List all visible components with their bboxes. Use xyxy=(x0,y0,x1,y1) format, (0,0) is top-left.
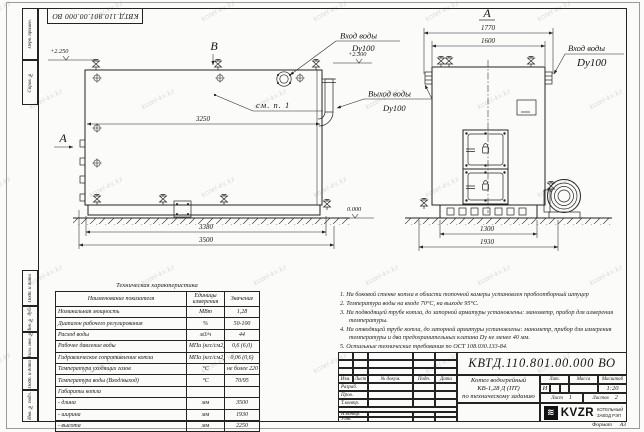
sign-tkontr: Т.контр. xyxy=(338,399,368,407)
sheets-value: 2 xyxy=(615,395,618,401)
cell-name: Расход воды xyxy=(56,329,187,340)
rev-cell xyxy=(435,360,457,368)
valve-icon xyxy=(313,60,320,71)
mass-label: Масса xyxy=(569,375,598,384)
lifting-lug-icon xyxy=(92,123,101,132)
rev-cell xyxy=(353,352,368,360)
rev-header-data: Дата xyxy=(435,375,457,383)
sheets-total: Листов 2 xyxy=(583,393,627,403)
left-flange-icon xyxy=(425,72,432,84)
door-hinge xyxy=(466,149,475,152)
cell-unit xyxy=(187,386,225,397)
kvzr-logo-text: KVZR xyxy=(561,407,594,419)
cell-unit: МПа (кгс/см2) xyxy=(187,341,225,352)
dim-text: 3380 xyxy=(198,223,214,231)
view-marker-text: В xyxy=(210,39,218,53)
table-row: Температура воды (Вход/выход)°С70/95 xyxy=(56,375,260,386)
see-note-callout: см. п. 1 xyxy=(214,94,323,111)
rev-cell xyxy=(368,368,413,375)
dim-text: 1770 xyxy=(481,24,496,32)
product-name: Котел водогрейный КВ-1,28 Д (ПТ) по техн… xyxy=(457,375,540,403)
cell-unit: МПа (кгс/см2) xyxy=(187,352,225,363)
cell-name: - длина xyxy=(56,398,187,409)
furnace-door-lower xyxy=(463,169,508,204)
drain-valve-icon xyxy=(421,199,428,210)
level-text: 0.000 xyxy=(347,206,362,213)
label-text: Dy100 xyxy=(351,43,375,53)
cell-name: Гидравлическое сопротивление котла xyxy=(56,352,187,363)
cell-unit: % xyxy=(187,318,225,329)
note-item: 3. На подводящей трубе котла, до запорно… xyxy=(340,309,627,326)
table-row: Температура уходящих газов°Сне более 220 xyxy=(56,363,260,374)
sign-cell xyxy=(368,383,413,391)
valve-icon xyxy=(528,57,535,68)
scale-value: 1:20 xyxy=(598,384,627,393)
lifting-lug-icon xyxy=(92,158,101,167)
format-note: Формат А3 xyxy=(556,422,626,428)
sign-cell xyxy=(368,399,413,407)
cell-value: 3500 xyxy=(225,398,260,409)
note-item: 5. Остальные технические требования по О… xyxy=(340,343,627,351)
doc-number: КВТД.110.801.00.000 ВО xyxy=(457,352,627,375)
view-title-text: А xyxy=(482,6,491,20)
note-item: 1. На боковой стенке котла в области топ… xyxy=(340,291,627,299)
cell-name: Диапазон рабочего регулирования xyxy=(56,318,187,329)
valve-icon xyxy=(215,60,222,71)
sign-cell xyxy=(435,417,457,422)
sign-cell xyxy=(435,399,457,407)
blower-fan xyxy=(544,180,581,219)
table-row: - длинамм3500 xyxy=(56,398,260,409)
valve-icon xyxy=(446,57,453,68)
cell-name: Габариты котла xyxy=(56,386,187,397)
cell-value: 2250 xyxy=(225,420,260,431)
format-label: Формат xyxy=(592,422,612,428)
tech-table-title: Техническая характеристика xyxy=(55,281,259,291)
cell-unit: м3/ч xyxy=(187,329,225,340)
table-row: Диапазон рабочего регулирования%50-100 xyxy=(56,318,260,329)
rev-cell xyxy=(353,368,368,375)
valve-icon xyxy=(438,57,445,68)
lit-label: Лит. xyxy=(540,375,569,384)
sheets-label: Листов xyxy=(592,396,608,401)
sheet-number: Лист 1 xyxy=(540,393,583,403)
dimension-3250: 3250 xyxy=(87,115,320,124)
product-name-line: по техническому заданию xyxy=(462,393,535,401)
ground-hatch xyxy=(405,218,612,225)
view-marker-text: А xyxy=(58,131,67,145)
cell-value: не более 220 xyxy=(225,363,260,374)
sign-cell xyxy=(413,399,435,407)
see-note-text: см. п. 1 xyxy=(256,100,290,110)
tech-col-units: Единицы измерения xyxy=(187,292,225,307)
drawing-sheet: { "sheet": { "stamp": "КВТД.110.801.00.0… xyxy=(0,0,644,430)
technical-notes: 1. На боковой стенке котла в области топ… xyxy=(340,291,627,352)
dim-text: 1300 xyxy=(480,225,495,233)
drain-valve-icon xyxy=(221,195,228,206)
rev-header-izm: Изм. xyxy=(338,375,353,383)
cell-value: 0,06 (0,6) xyxy=(225,352,260,363)
tech-characteristics: Техническая характеристика Наименование … xyxy=(55,281,259,432)
outlet-pipe xyxy=(318,79,336,126)
wall-bracket xyxy=(80,194,85,201)
label-water-inlet-left: Вход воды Dy100 xyxy=(290,31,400,76)
drain-valve-icon xyxy=(324,200,331,211)
sign-cell xyxy=(413,383,435,391)
cell-unit: мм xyxy=(187,409,225,420)
rev-cell xyxy=(413,360,435,368)
product-name-line: Котел водогрейный xyxy=(471,377,526,385)
rev-cell xyxy=(413,352,435,360)
label-text: Dy100 xyxy=(382,103,406,113)
lifting-lug-icon xyxy=(215,73,224,82)
door-lock-icon xyxy=(483,144,489,153)
cell-name: - высота xyxy=(56,420,187,431)
rev-cell xyxy=(338,352,353,360)
rev-cell xyxy=(368,360,413,368)
tech-table: Наименование показателя Единицы измерени… xyxy=(55,291,260,432)
drain-valve-icon xyxy=(94,195,101,206)
label-text: Вход воды xyxy=(340,31,377,41)
cell-value: 50-100 xyxy=(225,318,260,329)
scale-label: Масштаб xyxy=(598,375,627,384)
table-row: Габариты котла xyxy=(56,386,260,397)
right-flange-icon xyxy=(545,72,552,84)
rev-cell xyxy=(368,352,413,360)
wall-bracket xyxy=(80,158,85,165)
cell-value xyxy=(225,386,260,397)
sign-cell xyxy=(368,391,413,399)
kvzr-logo-icon: ≋ xyxy=(544,406,558,420)
view-arrow-a: А xyxy=(54,131,73,147)
lit-cell xyxy=(560,384,569,393)
cell-unit: мм xyxy=(187,398,225,409)
cell-unit: МВт xyxy=(187,307,225,318)
logo-sub-line: ЗАВОД РЭП xyxy=(597,413,623,418)
lifting-lug-icon xyxy=(92,73,101,82)
table-row: - высотамм2250 xyxy=(56,420,260,431)
cell-unit: мм xyxy=(187,420,225,431)
dim-text: 1600 xyxy=(481,37,496,45)
rev-header-podp: Подп. xyxy=(413,375,435,383)
product-name-line: КВ-1,28 Д (ПТ) xyxy=(477,385,519,393)
sign-utv: Утв. xyxy=(338,417,368,422)
sign-prov: Пров. xyxy=(338,391,368,399)
cell-value: 44 xyxy=(225,329,260,340)
valve-icon xyxy=(93,60,100,71)
tech-col-value: Значение xyxy=(225,292,260,307)
dimension-1600: 1600 xyxy=(432,37,545,66)
rev-header-list: Лист xyxy=(353,375,368,383)
label-water-outlet: Выход воды Dy100 xyxy=(337,85,432,113)
rev-header-docnum: № докум. xyxy=(368,375,413,383)
dim-text: 3250 xyxy=(195,115,211,123)
cell-value: 0,6 (6,0) xyxy=(225,341,260,352)
level-mark-2250: +2.250 xyxy=(48,48,95,60)
manufacturer-logo: ≋ KVZR КОТЕЛЬНЫЙ ЗАВОД РЭП xyxy=(540,403,627,422)
drain-valve-icon xyxy=(160,195,167,206)
format-value: А3 xyxy=(620,422,626,428)
sheet-label: Лист xyxy=(551,396,563,401)
cell-unit: °С xyxy=(187,363,225,374)
rev-cell xyxy=(353,360,368,368)
furnace-door-upper xyxy=(463,130,508,169)
door-hinge xyxy=(466,186,475,189)
mass-value xyxy=(569,384,598,393)
label-text: Выход воды xyxy=(368,89,411,99)
skid-base xyxy=(88,205,320,215)
rev-cell xyxy=(413,368,435,375)
nameplate xyxy=(517,100,536,115)
table-row: - ширинамм1930 xyxy=(56,409,260,420)
rev-cell xyxy=(338,360,353,368)
label-text: Dy100 xyxy=(576,57,607,69)
kvzr-logo-subtitle: КОТЕЛЬНЫЙ ЗАВОД РЭП xyxy=(597,407,623,418)
cell-name: Температура воды (Вход/выход) xyxy=(56,375,187,386)
sheet-value: 1 xyxy=(569,395,572,401)
sign-cell xyxy=(413,417,435,422)
front-base xyxy=(440,205,537,218)
cell-unit: °С xyxy=(187,375,225,386)
wall-bracket xyxy=(80,176,85,183)
cell-name: Номинальная мощность xyxy=(56,307,187,318)
lit-cell xyxy=(550,384,560,393)
label-text: Вход воды xyxy=(568,43,605,53)
dim-text: 3500 xyxy=(198,236,214,244)
wall-bracket xyxy=(80,140,85,147)
sign-cell xyxy=(368,417,413,422)
rev-cell xyxy=(435,352,457,360)
tech-col-name: Наименование показателя xyxy=(56,292,187,307)
rev-cell xyxy=(435,368,457,375)
cell-value: 70/95 xyxy=(225,375,260,386)
cell-name: Рабочее давление воды xyxy=(56,341,187,352)
table-row: Гидравлическое сопротивление котлаМПа (к… xyxy=(56,352,260,363)
sign-razrab: Разраб. xyxy=(338,383,368,391)
empty-cell xyxy=(457,403,540,422)
label-water-inlet-right: Вход воды Dy100 xyxy=(554,43,624,74)
side-view: 3250 3380 3500 +2.250 0.000 xyxy=(48,39,374,249)
dim-text: 1930 xyxy=(480,238,495,246)
sign-cell xyxy=(435,391,457,399)
table-row: Расход водым3/ч44 xyxy=(56,329,260,340)
lifting-lug-icon xyxy=(295,73,304,82)
table-row: Рабочее давление водыМПа (кгс/см2)0,6 (6… xyxy=(56,341,260,352)
cell-value: 1930 xyxy=(225,409,260,420)
level-text: +2.250 xyxy=(50,48,69,55)
cell-name: Температура уходящих газов xyxy=(56,363,187,374)
sign-cell xyxy=(413,391,435,399)
inlet-flange-icon xyxy=(277,72,291,86)
note-item: 2. Температура воды на входе 70°С, на вы… xyxy=(340,300,627,308)
table-row: Номинальная мощностьМВт1,28 xyxy=(56,307,260,318)
level-mark-zero: 0.000 xyxy=(335,206,374,218)
lit-value: И xyxy=(540,384,550,393)
cell-value: 1,28 xyxy=(225,307,260,318)
sign-cell xyxy=(435,383,457,391)
note-item: 4. На отводящей трубе котла, до запорной… xyxy=(340,326,627,343)
cell-name: - ширина xyxy=(56,409,187,420)
door-lock-icon xyxy=(483,181,489,190)
rev-cell xyxy=(338,368,353,375)
